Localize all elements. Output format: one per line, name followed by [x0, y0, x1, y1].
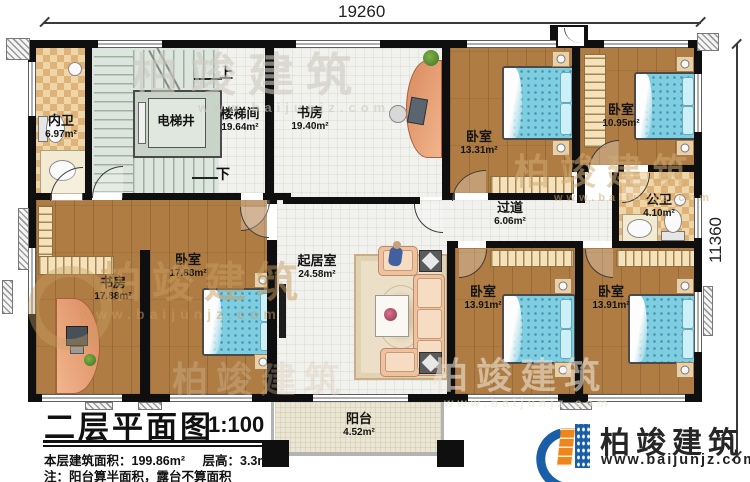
bed — [202, 288, 276, 356]
balcony-railing — [288, 452, 438, 456]
wall-segment — [442, 48, 450, 197]
bed — [634, 72, 698, 140]
right-dimension-line — [736, 44, 738, 456]
window — [98, 40, 162, 48]
title-underline — [43, 445, 269, 447]
wardrobe — [490, 250, 574, 267]
wall-segment — [140, 250, 150, 394]
keyboard — [70, 346, 84, 354]
potted-plant — [423, 50, 439, 66]
window — [694, 74, 702, 132]
stair-down-label: 下 — [216, 164, 230, 184]
brand-logo-tower-icon — [575, 424, 590, 468]
room-area: 17.88m² — [94, 291, 131, 302]
floor-plan-canvas: 19260 11360 — [0, 0, 750, 482]
room-area: 10.95m² — [602, 118, 639, 129]
wall-segment — [447, 241, 455, 394]
room-label-shufang-bottom: 书房 17.88m² — [94, 276, 131, 302]
computer-monitor — [66, 326, 88, 346]
nightstand — [554, 362, 572, 378]
stair-up-label: 上 — [219, 63, 233, 83]
room-name: 公卫 — [643, 193, 675, 208]
room-label-woshi-1331: 卧室 13.31m² — [460, 130, 497, 156]
nightstand — [676, 56, 694, 72]
window — [588, 394, 685, 402]
room-name: 电梯井 — [157, 114, 195, 128]
room-area: 4.52m² — [343, 427, 375, 438]
wardrobe — [490, 176, 574, 194]
window — [28, 248, 36, 314]
room-name: 卧室 — [460, 130, 497, 145]
top-dimension-label: 19260 — [338, 2, 385, 22]
wall-segment — [648, 165, 702, 172]
room-label-neiwei: 内卫 6.97m² — [45, 114, 77, 140]
wardrobe — [616, 250, 696, 267]
window — [296, 40, 380, 48]
room-name: 卧室 — [464, 285, 501, 300]
room-label-gongwei: 公卫 4.10m² — [643, 193, 675, 219]
room-label-woshi-1788: 卧室 17.88m² — [169, 253, 206, 279]
wall-segment — [486, 241, 575, 248]
stair-direction-line — [192, 177, 218, 179]
nightstand — [676, 278, 694, 294]
wall-segment — [85, 48, 92, 193]
wall-segment — [265, 48, 274, 197]
room-label-yangtai: 阳台 4.52m² — [343, 412, 375, 438]
nightstand — [554, 278, 572, 294]
nightstand — [676, 362, 694, 378]
room-name: 书房 — [94, 276, 131, 291]
room-label-woshi-1391b: 卧室 13.91m² — [592, 285, 629, 311]
bookshelf — [38, 256, 114, 275]
column — [437, 440, 464, 467]
window — [467, 40, 557, 48]
window — [42, 394, 122, 402]
brand-website: www.baijunjz.com — [601, 452, 750, 468]
wall-segment — [572, 165, 588, 172]
sink-basin — [627, 219, 652, 238]
wall-segment — [572, 48, 580, 165]
wall-segment — [612, 241, 702, 248]
bed — [502, 294, 576, 364]
side-table — [419, 250, 442, 272]
room-name: 楼梯间 — [220, 107, 259, 122]
plan-scale: 1:100 — [208, 412, 264, 438]
window — [694, 198, 702, 238]
window — [468, 394, 558, 402]
room-label-woshi-1391a: 卧室 13.91m² — [464, 285, 501, 311]
room-label-qijushi: 起居室 24.58m² — [297, 254, 336, 280]
window — [170, 394, 252, 402]
window — [604, 40, 688, 48]
wall-segment — [283, 197, 420, 204]
elevator-counterweight — [138, 102, 146, 144]
sofa-cushion — [417, 278, 442, 308]
room-area: 6.06m² — [494, 216, 526, 227]
remark-note: 注：阳台算半面积，露台不算面积 — [44, 466, 232, 482]
wall-segment — [82, 193, 92, 200]
room-area: 17.88m² — [169, 268, 206, 279]
room-area: 6.97m² — [45, 129, 77, 140]
window — [694, 292, 702, 352]
flower-decor — [384, 308, 397, 321]
top-dimension-line — [43, 22, 701, 24]
room-label-loutijian: 楼梯间 19.64m² — [220, 107, 259, 133]
room-name: 过道 — [494, 201, 526, 216]
room-name: 阳台 — [343, 412, 375, 427]
stair-direction-line — [194, 78, 222, 80]
hatch-block — [560, 402, 592, 410]
hatch-block — [6, 38, 30, 60]
bed — [502, 66, 576, 140]
room-area: 24.58m² — [297, 269, 336, 280]
wardrobe — [584, 54, 606, 148]
nightstand — [552, 51, 570, 67]
room-label-elevator: 电梯井 — [157, 114, 195, 128]
room-name: 起居室 — [297, 254, 336, 269]
room-name: 卧室 — [602, 103, 639, 118]
stair-steps — [133, 154, 218, 194]
right-dimension-label: 11360 — [706, 217, 726, 263]
desk-chair — [389, 105, 407, 123]
sliding-door — [313, 394, 408, 402]
potted-plant — [84, 354, 96, 366]
wall-segment — [612, 172, 619, 241]
room-area: 13.91m² — [592, 300, 629, 311]
room-name: 卧室 — [169, 253, 206, 268]
wall-segment — [488, 193, 572, 200]
room-area: 19.40m² — [291, 121, 328, 132]
nightstand — [552, 140, 570, 156]
window — [28, 62, 36, 116]
bed — [628, 294, 698, 364]
room-area: 19.64m² — [220, 122, 259, 133]
room-name: 书房 — [291, 106, 328, 121]
fixture — [674, 194, 686, 206]
wall-segment — [122, 193, 241, 200]
room-area: 13.91m² — [464, 300, 501, 311]
person-head — [393, 241, 401, 249]
room-name: 卧室 — [592, 285, 629, 300]
wall-segment — [575, 241, 583, 394]
tv-unit — [279, 284, 286, 338]
side-table — [419, 352, 442, 374]
hatch-block — [2, 280, 13, 314]
sofa-cushion — [417, 309, 442, 339]
hatch-block — [697, 33, 719, 51]
hatch-block — [18, 208, 29, 270]
room-area: 13.31m² — [460, 145, 497, 156]
armchair-cushion — [385, 352, 415, 372]
room-label-woshi-1095: 卧室 10.95m² — [602, 103, 639, 129]
room-label-shufang-top: 书房 19.40m² — [291, 106, 328, 132]
fixture — [68, 62, 82, 76]
title-underline — [43, 440, 269, 443]
hatch-block — [703, 286, 713, 336]
flue-vent — [556, 25, 586, 48]
room-area: 4.10m² — [643, 208, 675, 219]
room-label-guodao: 过道 6.06m² — [494, 201, 526, 227]
nightstand — [676, 140, 694, 156]
room-name: 内卫 — [45, 114, 77, 129]
wall-segment — [267, 240, 277, 394]
